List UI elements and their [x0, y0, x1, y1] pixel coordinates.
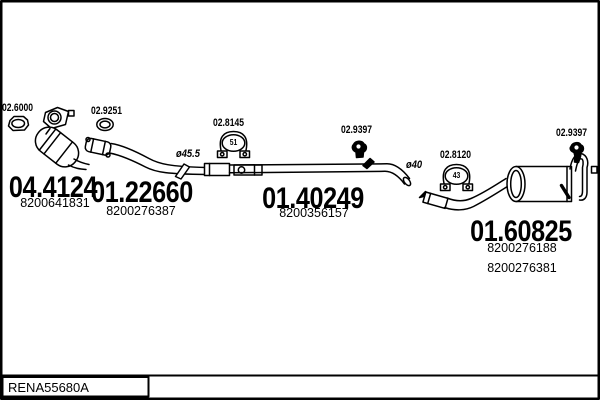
mid-gasket-icon	[97, 119, 113, 131]
front-clamp-size: 51	[225, 138, 242, 147]
centre-hanger-ref-label: 02.9397	[341, 125, 372, 136]
front-pipe-oe-number: 8200276387	[86, 205, 196, 218]
centre-pipe-diameter-label: ø40	[406, 160, 422, 171]
drawing-code: RENA55680A	[8, 381, 89, 394]
catalyst-art	[30, 108, 89, 173]
front-pipe-diameter-label: ø45.5	[176, 149, 200, 160]
front-gasket-icon	[9, 117, 29, 131]
flex-coupling-art	[84, 138, 111, 158]
centre-hanger-icon	[352, 141, 366, 157]
centre-pipe-oe-number: 8200356157	[259, 207, 369, 220]
rear-silencer-oe-number-2: 8200276381	[467, 262, 577, 275]
catalog-diagram-page: 02.6000 02.9251 02.8145 02.9397 02.8120 …	[0, 0, 600, 400]
rear-clamp-ref-label: 02.8120	[440, 150, 471, 161]
mid-gasket-ref-label: 02.9251	[91, 106, 122, 117]
rear-hanger-ref-label: 02.9397	[556, 128, 587, 139]
rear-silencer-art	[507, 153, 597, 201]
rear-clamp-size: 43	[448, 171, 465, 180]
front-gasket-ref-label: 02.6000	[2, 103, 33, 114]
rear-silencer-oe-number-1: 8200276188	[467, 242, 577, 255]
front-clamp-ref-label: 02.8145	[213, 118, 244, 129]
